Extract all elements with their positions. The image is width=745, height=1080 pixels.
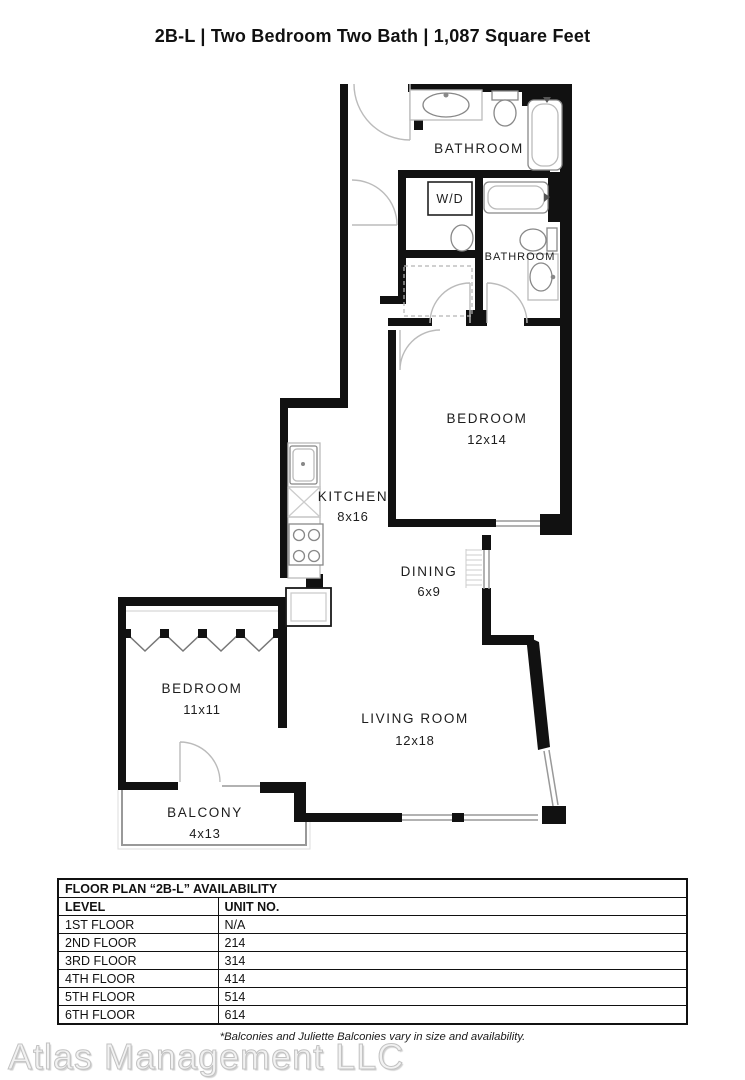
table-row: 5TH FLOOR 514 <box>58 988 687 1006</box>
toilet-tank <box>492 91 518 100</box>
laundry-sink <box>451 225 473 251</box>
level-cell: 2ND FLOOR <box>58 934 218 952</box>
room-dims-living-room: 12x18 <box>395 733 434 748</box>
juliet-balcony-hatch <box>466 549 482 588</box>
unit-cell: N/A <box>218 916 687 934</box>
toilet-2-tank <box>547 228 557 251</box>
company-watermark: Atlas Management LLC <box>8 1036 404 1078</box>
level-cell: 4TH FLOOR <box>58 970 218 988</box>
unit-cell: 514 <box>218 988 687 1006</box>
table-row: 2ND FLOOR 214 <box>58 934 687 952</box>
windows <box>222 521 558 820</box>
bathtub-2-inner <box>488 186 544 209</box>
table-row: 6TH FLOOR 614 <box>58 1006 687 1025</box>
refrigerator-inner <box>291 593 326 621</box>
table-row: 3RD FLOOR 314 <box>58 952 687 970</box>
room-label-balcony: BALCONY <box>167 805 243 820</box>
room-label-bathroom-2: BATHROOM <box>485 251 556 263</box>
bathtub-inner <box>532 104 558 166</box>
room-label-dining: DINING <box>401 564 458 579</box>
unit-cell: 214 <box>218 934 687 952</box>
sink-2-faucet <box>551 275 556 280</box>
level-cell: 6TH FLOOR <box>58 1006 218 1025</box>
room-dims-kitchen: 8x16 <box>337 509 368 524</box>
kitchen-faucet <box>301 462 305 466</box>
availability-table: FLOOR PLAN “2B-L” AVAILABILITY LEVEL UNI… <box>57 878 688 1025</box>
table-header-row: LEVEL UNIT NO. <box>58 898 687 916</box>
room-label-wd: W/D <box>436 192 463 206</box>
unit-cell: 314 <box>218 952 687 970</box>
faucet-dot <box>444 93 449 98</box>
room-dims-dining: 6x9 <box>417 584 440 599</box>
room-dims-balcony: 4x13 <box>189 826 220 841</box>
table-title-row: FLOOR PLAN “2B-L” AVAILABILITY <box>58 879 687 898</box>
room-dims-bedroom-11x11: 11x11 <box>183 702 221 717</box>
room-dims-bedroom-12x14: 12x14 <box>467 432 506 447</box>
unit-cell: 414 <box>218 970 687 988</box>
room-label-bathroom-1: BATHROOM <box>434 141 524 156</box>
table-title: FLOOR PLAN “2B-L” AVAILABILITY <box>58 879 687 898</box>
room-label-bedroom-11x11: BEDROOM <box>162 681 243 696</box>
room-label-living-room: LIVING ROOM <box>361 711 469 726</box>
table-row: 1ST FLOOR N/A <box>58 916 687 934</box>
closet-dashed-outline <box>404 266 472 316</box>
closet-doors-chevrons <box>122 611 282 651</box>
level-cell: 1ST FLOOR <box>58 916 218 934</box>
toilet-2-bowl <box>520 229 546 251</box>
column-header-level: LEVEL <box>58 898 218 916</box>
column-header-unit: UNIT NO. <box>218 898 687 916</box>
flyer-page: 2B-L | Two Bedroom Two Bath | 1,087 Squa… <box>0 0 745 1080</box>
sink-2-basin <box>530 263 552 291</box>
level-cell: 5TH FLOOR <box>58 988 218 1006</box>
unit-cell: 614 <box>218 1006 687 1025</box>
level-cell: 3RD FLOOR <box>58 952 218 970</box>
room-label-kitchen: KITCHEN <box>318 489 388 504</box>
room-label-bedroom-12x14: BEDROOM <box>447 411 528 426</box>
toilet-bowl <box>494 100 516 126</box>
table-row: 4TH FLOOR 414 <box>58 970 687 988</box>
